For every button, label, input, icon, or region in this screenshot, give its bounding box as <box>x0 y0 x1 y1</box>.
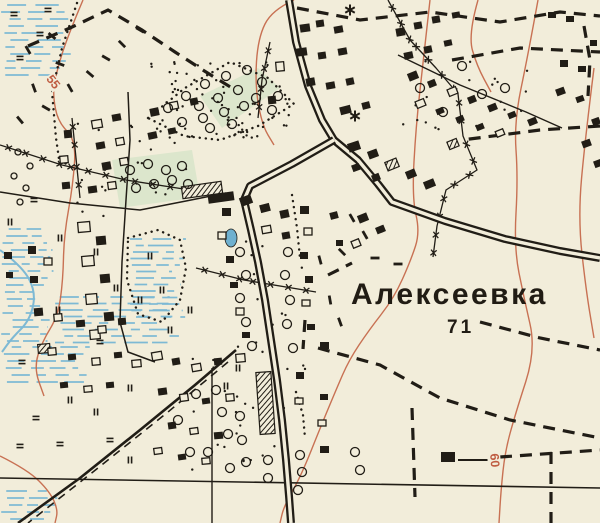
building <box>108 181 117 189</box>
building <box>68 354 76 361</box>
building <box>202 397 211 404</box>
building <box>151 351 162 361</box>
building <box>114 352 122 359</box>
place-name-label: Алексеевка <box>351 278 548 312</box>
building <box>318 51 327 59</box>
building <box>590 40 597 46</box>
building <box>307 324 315 330</box>
building <box>30 276 38 283</box>
building <box>222 208 231 216</box>
building <box>88 185 98 193</box>
building <box>320 342 329 349</box>
building <box>281 231 290 239</box>
building <box>92 358 101 366</box>
building <box>276 62 285 72</box>
building <box>214 432 224 440</box>
building <box>214 358 223 366</box>
building <box>431 15 440 23</box>
building <box>336 240 343 246</box>
building <box>44 258 52 265</box>
building <box>60 156 69 164</box>
building <box>82 255 95 266</box>
building <box>178 453 187 460</box>
building <box>299 23 310 32</box>
building <box>318 420 326 426</box>
building <box>86 294 98 305</box>
building <box>296 372 304 379</box>
building <box>320 394 328 400</box>
building <box>191 363 201 371</box>
building <box>91 119 102 129</box>
building <box>295 398 303 404</box>
building <box>300 206 309 214</box>
building <box>76 320 86 328</box>
building <box>441 452 455 462</box>
building <box>169 101 178 110</box>
building <box>104 312 115 322</box>
building <box>578 66 586 72</box>
building <box>226 256 234 263</box>
building <box>158 387 168 395</box>
building <box>320 446 329 453</box>
building <box>548 12 556 18</box>
building <box>300 252 308 259</box>
building <box>48 348 57 356</box>
building <box>100 274 111 284</box>
building <box>6 272 13 278</box>
building <box>106 382 114 389</box>
building <box>236 354 246 363</box>
building <box>202 458 210 465</box>
building <box>118 318 127 326</box>
map-canvas <box>0 0 600 523</box>
building <box>218 232 226 239</box>
pond-feature <box>225 229 237 247</box>
bush-icon <box>394 263 403 266</box>
building <box>4 252 12 259</box>
building <box>413 21 422 29</box>
building <box>78 221 91 232</box>
building <box>242 332 250 338</box>
building <box>60 382 68 389</box>
building <box>171 357 180 365</box>
building <box>84 386 92 393</box>
bush-icon <box>371 257 380 260</box>
building <box>316 19 325 27</box>
building <box>566 16 574 22</box>
building <box>101 161 111 170</box>
building <box>295 47 307 56</box>
building <box>304 228 312 235</box>
building <box>226 394 235 402</box>
building <box>230 282 238 288</box>
elevation-label: 71 <box>447 317 474 339</box>
building <box>115 137 124 145</box>
topographic-map: Алексеевка 71 55 60 <box>0 0 600 523</box>
building <box>28 246 36 254</box>
building <box>395 27 405 36</box>
building <box>261 225 271 233</box>
building <box>132 360 142 368</box>
building <box>305 276 313 283</box>
building <box>560 60 568 67</box>
building <box>305 77 315 86</box>
building <box>64 130 73 139</box>
building <box>119 157 128 165</box>
building <box>190 427 199 434</box>
building <box>96 236 107 246</box>
building <box>154 447 163 454</box>
building <box>34 308 44 317</box>
building <box>180 393 189 401</box>
contour-label-60: 60 <box>488 452 502 469</box>
building <box>62 182 71 190</box>
building <box>302 300 310 306</box>
building <box>236 308 244 315</box>
building <box>98 326 107 334</box>
building <box>54 314 63 322</box>
